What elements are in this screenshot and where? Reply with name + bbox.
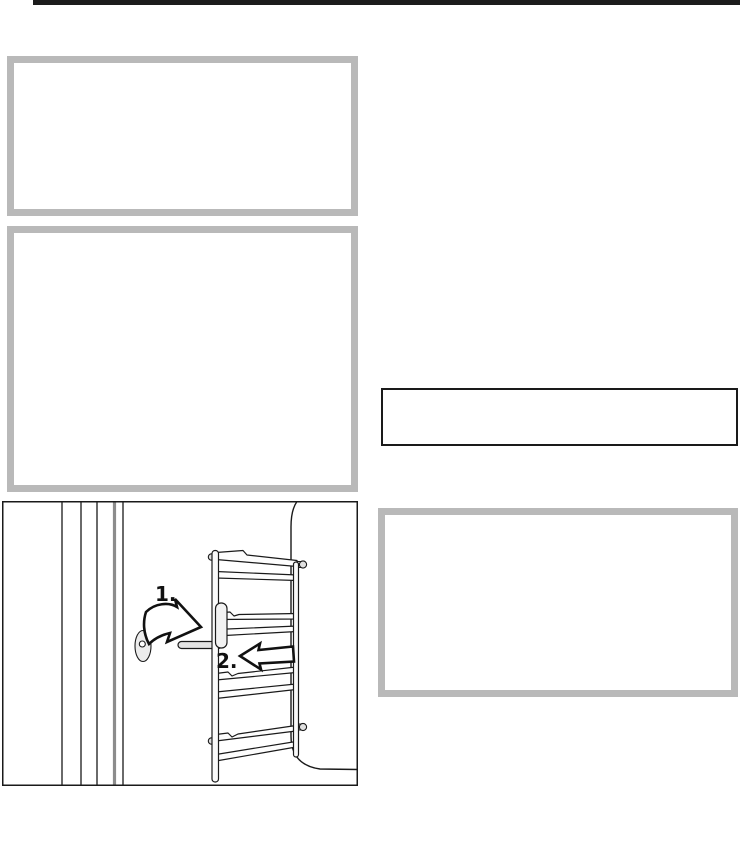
content-box-top-left	[7, 56, 358, 216]
step2-label: 2.	[216, 649, 238, 673]
note-box-right	[381, 388, 738, 446]
step1-label: 1.	[155, 582, 177, 606]
content-box-mid-left	[7, 226, 358, 492]
content-box-bottom-right	[378, 508, 738, 697]
page-top-rule	[33, 0, 740, 5]
rack-mounting-lug	[216, 603, 228, 648]
side-runner-illustration: 1. 2.	[2, 501, 358, 786]
